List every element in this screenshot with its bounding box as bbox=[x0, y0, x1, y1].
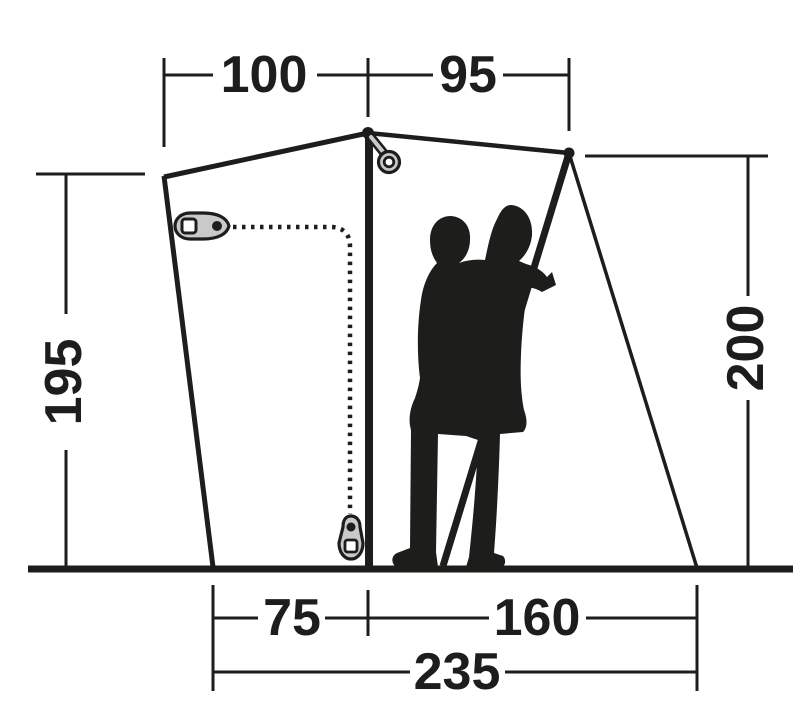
dim-label-top-left: 100 bbox=[221, 46, 308, 104]
right-peak-joint bbox=[564, 148, 575, 159]
dim-label-top-right: 95 bbox=[439, 46, 497, 104]
person-carrying-child-silhouette bbox=[392, 205, 556, 567]
zipper-pull-bottom-pin bbox=[347, 523, 356, 532]
zipper-pull-top-hole bbox=[182, 219, 196, 233]
dim-label-right-height: 200 bbox=[717, 305, 775, 392]
dimension-right: 200 bbox=[585, 156, 775, 568]
roof-line-right bbox=[368, 133, 569, 153]
dim-label-bottom-left: 75 bbox=[263, 589, 321, 647]
dim-label-left-height: 195 bbox=[35, 339, 93, 426]
roof-line-left bbox=[164, 133, 368, 177]
dimension-left: 195 bbox=[35, 174, 145, 568]
zipper-pull-top-pin bbox=[212, 221, 222, 231]
hang-loop-hole bbox=[384, 157, 394, 167]
dim-label-bottom-total: 235 bbox=[414, 643, 501, 701]
zipper-pull-bottom-hole bbox=[345, 540, 357, 552]
guy-rope-line bbox=[569, 153, 697, 568]
dimension-bottom: 75 160 235 bbox=[213, 585, 697, 701]
zipper-dotted-path bbox=[233, 227, 350, 514]
tent-dimension-diagram: 100 95 195 200 75 160 235 bbox=[0, 0, 800, 720]
dim-label-bottom-right: 160 bbox=[494, 589, 581, 647]
diagram-canvas: 100 95 195 200 75 160 235 bbox=[0, 0, 800, 720]
